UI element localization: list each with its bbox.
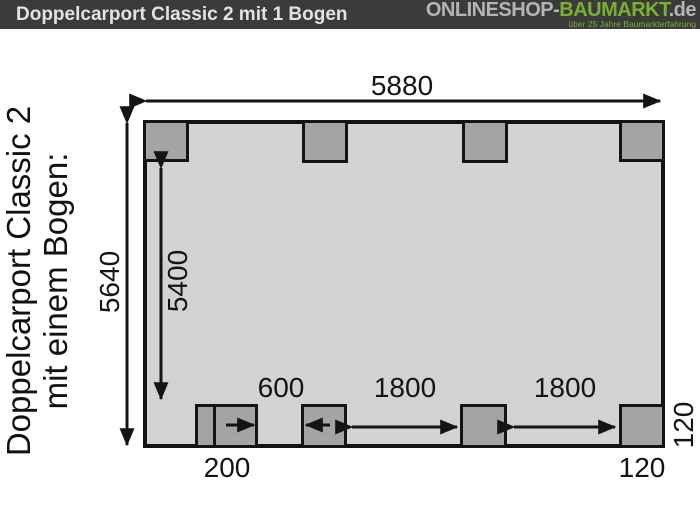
caption-line-2: mit einem Bogen: <box>37 61 74 501</box>
post-top-4 <box>619 120 665 162</box>
post-bottom-4 <box>619 404 665 448</box>
dim-total-depth-label: 5640 <box>94 251 126 313</box>
dim-post-size-bottom-label: 120 <box>619 452 666 484</box>
logo-part-baumarkt: BAUMARKT <box>559 0 668 21</box>
dim-front-offset-label: 200 <box>204 452 251 484</box>
post-bottom-3 <box>460 404 507 448</box>
page-title: Doppelcarport Classic 2 mit 1 Bogen <box>16 0 348 29</box>
post-divider-line <box>213 407 216 445</box>
post-top-2 <box>302 120 348 163</box>
logo-part-onlineshop: ONLINESHOP- <box>426 0 559 21</box>
dim-post-size-right-label: 120 <box>668 402 700 449</box>
caption-line-1: Doppelcarport Classic 2 <box>0 61 37 501</box>
post-bottom-1-double <box>195 404 258 448</box>
post-top-3 <box>462 120 508 163</box>
shop-logo: ONLINESHOP-BAUMARKT.de über 25 Jahre Bau… <box>426 2 696 28</box>
dim-front-gap-small-label: 600 <box>258 372 305 404</box>
dim-front-gap-b-label: 1800 <box>534 372 596 404</box>
logo-part-de: .de <box>669 0 696 21</box>
logo-tagline: über 25 Jahre Baumarkterfahrung <box>426 20 696 28</box>
top-bar: Doppelcarport Classic 2 mit 1 Bogen ONLI… <box>0 0 700 29</box>
page: Doppelcarport Classic 2 mit 1 Bogen ONLI… <box>0 0 700 525</box>
dim-front-gap-a-label: 1800 <box>374 372 436 404</box>
logo-text: ONLINESHOP-BAUMARKT.de <box>426 2 696 18</box>
dim-total-width-label: 5880 <box>371 70 433 102</box>
dim-clear-depth-label: 5400 <box>162 250 194 312</box>
post-bottom-2 <box>301 404 347 448</box>
post-top-1 <box>143 120 189 162</box>
diagram-caption: Doppelcarport Classic 2 mit einem Bogen: <box>0 61 74 501</box>
